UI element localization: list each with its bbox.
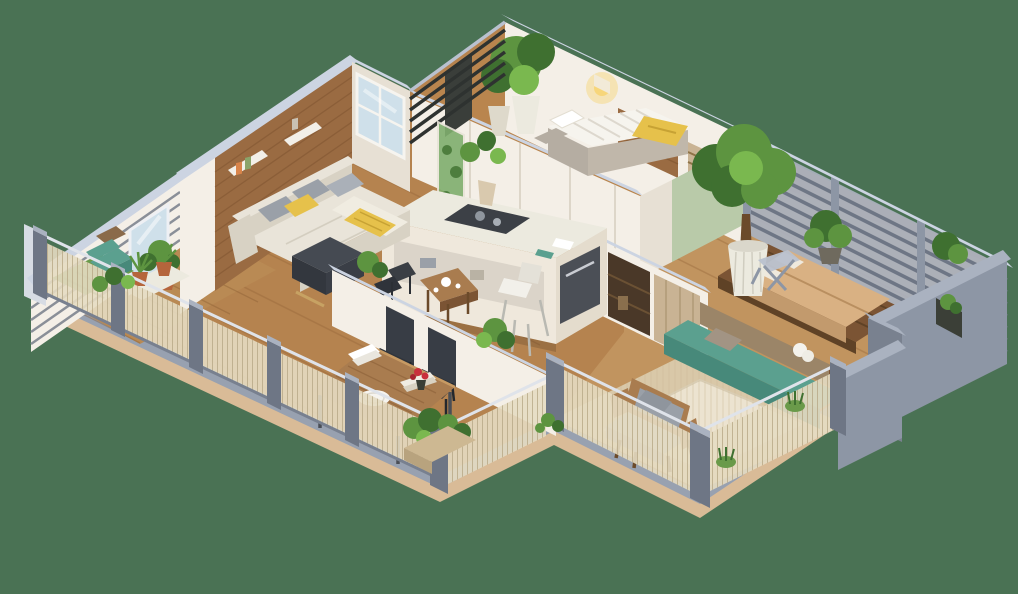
shelf-books-3 [292,118,298,130]
vase-plant-2 [477,133,495,151]
glass-leaf-1 [442,145,452,155]
far-shrub-2 [948,244,968,264]
vase-plant-3 [490,148,506,164]
niche-item [618,296,628,310]
shrub-pot [818,248,842,264]
post-5 [345,377,359,447]
teapot [441,277,451,287]
shrub-2 [828,224,852,248]
teacup-1 [434,288,439,293]
corner-post-c [690,428,710,508]
shelf-books-2 [245,156,251,169]
shrub-3 [804,228,824,248]
pot-rim [728,240,768,252]
niche-plant-2 [950,302,962,314]
glass-leaf-2 [450,166,462,178]
tree-canopy-6 [729,151,763,185]
grass-n1-3 [535,423,545,433]
stool-back [518,262,542,284]
post-4 [267,340,281,410]
grass-n1-2 [552,420,564,432]
corner-bush-3 [476,332,492,348]
shelf-books-1 [236,162,242,175]
white-towel-2 [802,350,814,362]
post-1 [33,230,47,300]
floor-plan-render [0,0,1018,594]
wall-plant-2 [372,262,388,278]
teacup-2 [456,284,461,289]
corner-planter-3 [121,275,135,289]
vase-plant-1 [460,142,480,162]
shelf-item-1 [420,258,436,268]
balcony-tree-canopy-4 [509,65,539,95]
red-rose-2 [422,373,429,380]
corner-planter-2 [105,267,123,285]
red-rose-1 [414,368,422,376]
isometric-scene [0,0,1018,594]
pot-on-cooktop-2 [493,218,501,226]
pot-on-cooktop [475,211,485,221]
post-3 [189,304,203,374]
planter-bush-2 [418,408,442,432]
corner-bush-2 [497,331,515,349]
post-terrace-e [830,362,846,436]
shelf-item-2 [470,270,484,280]
red-rose-3 [410,374,416,380]
